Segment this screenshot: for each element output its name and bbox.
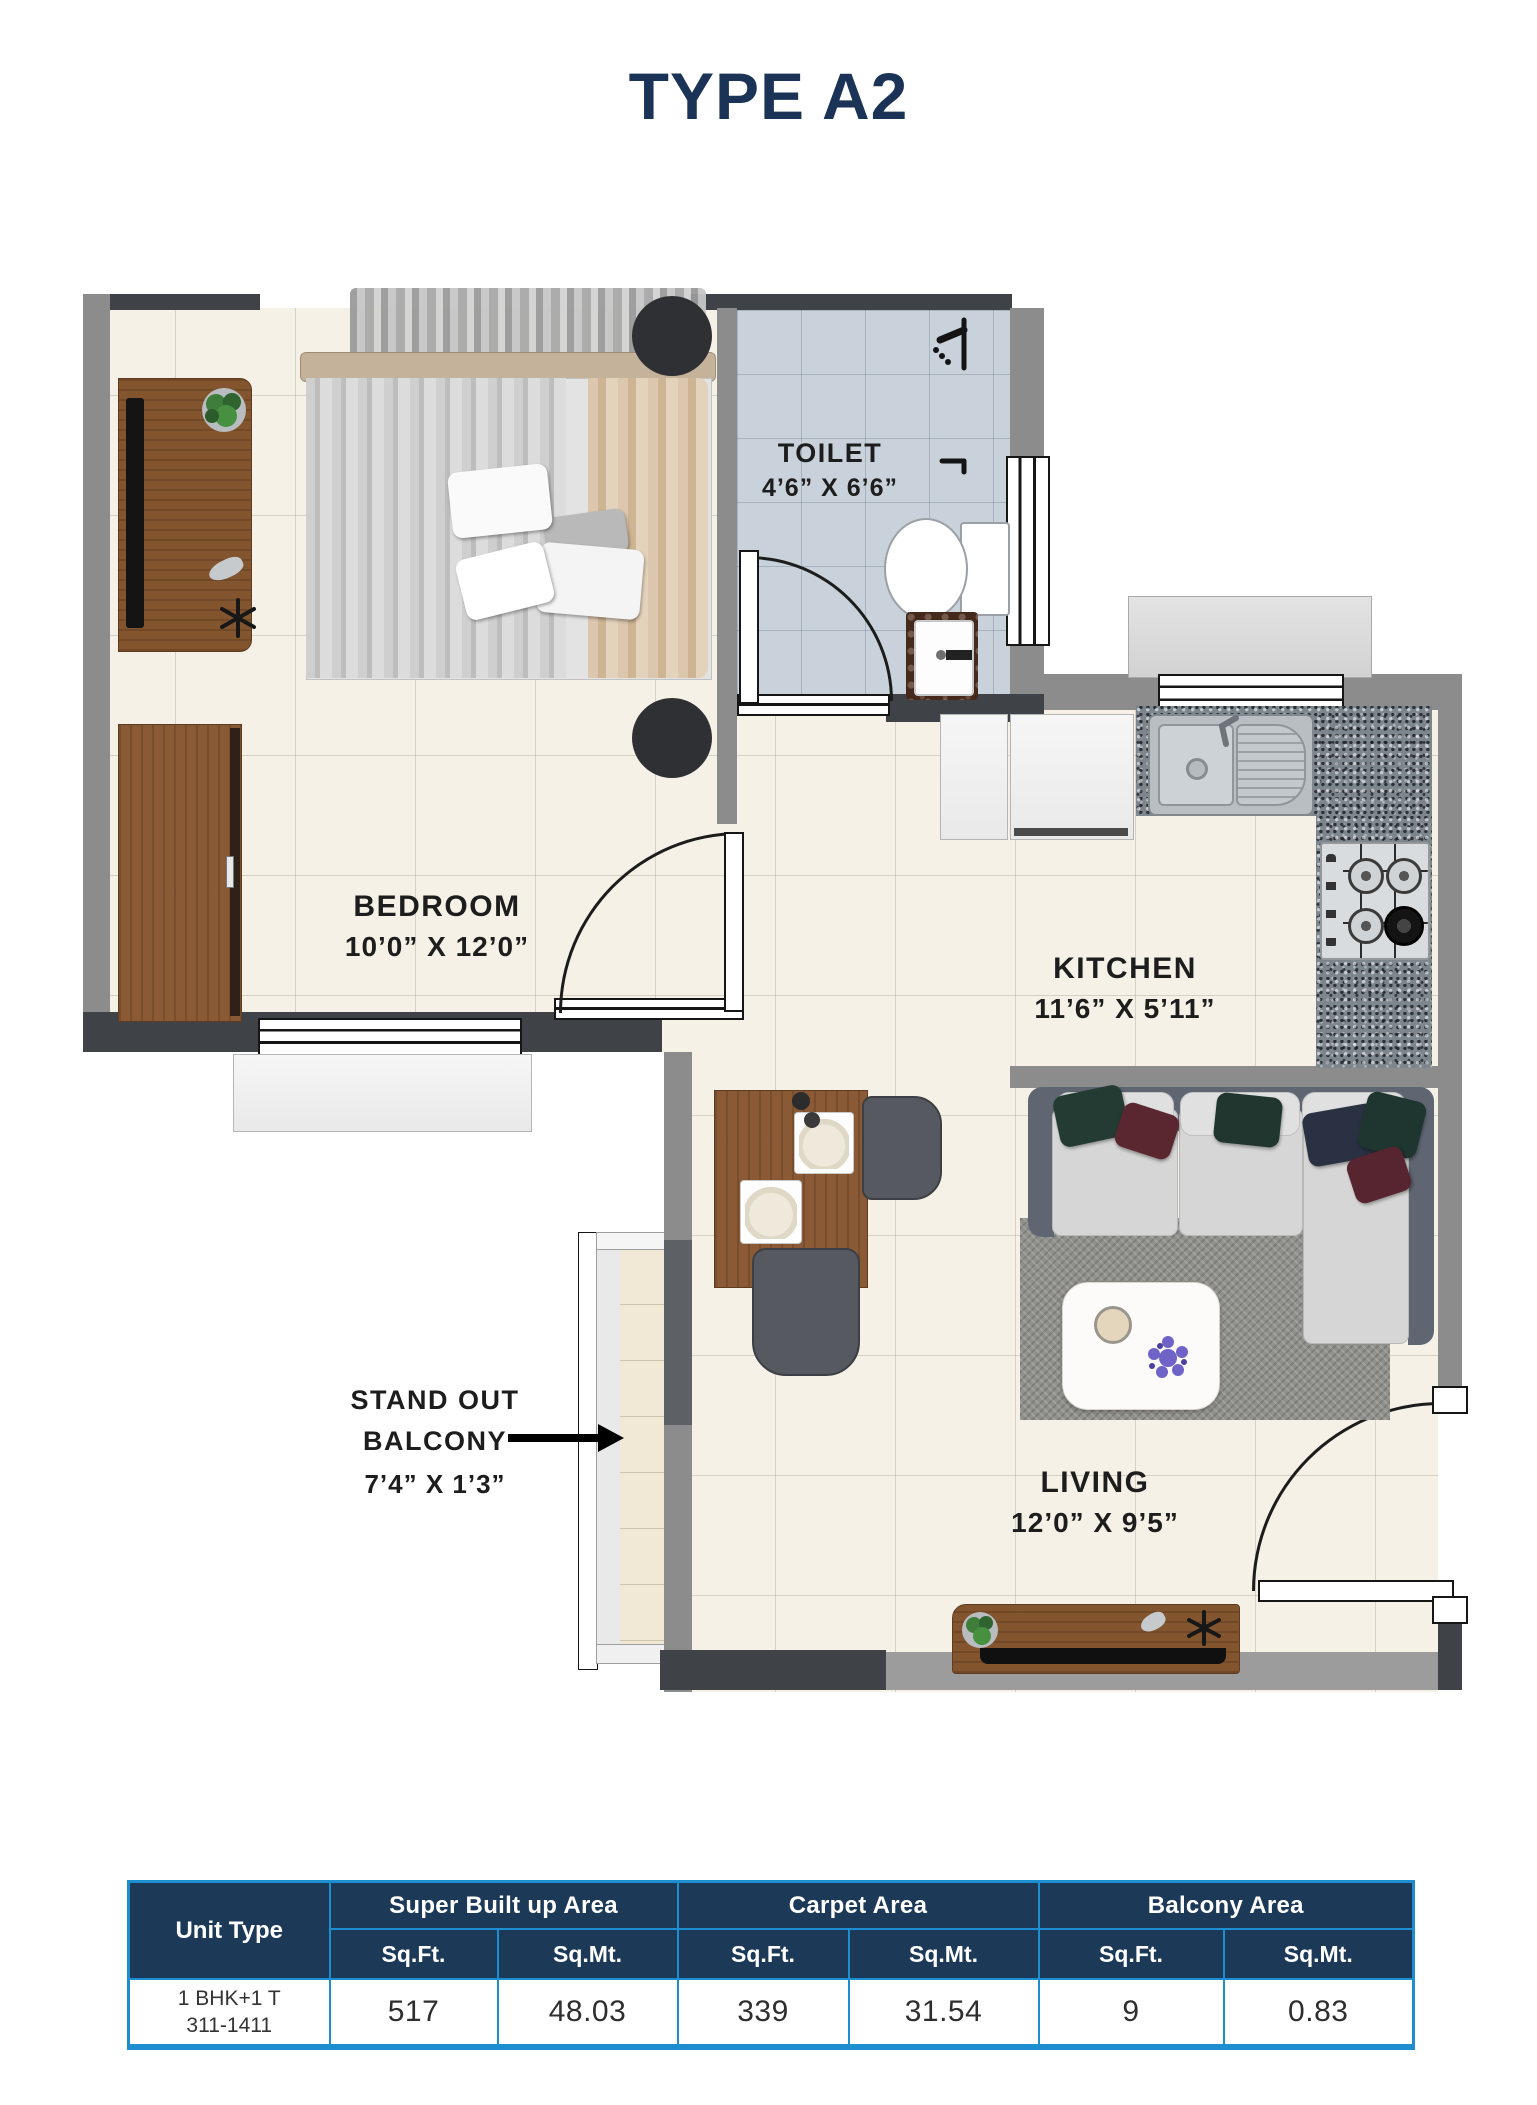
bedside-stool-top (632, 296, 712, 376)
value-sbu-sqft: 517 (330, 1979, 498, 2047)
gas-stove (1320, 842, 1430, 960)
ac-ledge-box (233, 1054, 532, 1132)
console-plant-icon (956, 1606, 1004, 1654)
toilet-label: TOILET 4’6” X 6’6” (730, 438, 930, 503)
wall-living-bottom-left (660, 1650, 886, 1690)
living-tv-screen (980, 1648, 1226, 1664)
console-decor-star-icon (216, 596, 260, 640)
sink-faucet-icon (1212, 714, 1242, 750)
kitchen-cabinet-box (940, 714, 1008, 840)
bedroom-tv-screen (126, 398, 144, 628)
col-group-carpet: Carpet Area (678, 1882, 1039, 1930)
dining-bottle-2 (804, 1112, 820, 1128)
unit-type-cell: 1 BHK+1 T 311-1411 (129, 1979, 330, 2047)
col-group-super-built-up: Super Built up Area (330, 1882, 678, 1930)
bedside-stool-bottom (632, 698, 712, 778)
wall-top-toilet (690, 294, 1012, 310)
balcony-bottom-sill (596, 1644, 666, 1664)
burner-4-wok (1384, 906, 1424, 946)
entry-door-jamb-bottom (1432, 1596, 1468, 1624)
sub-header-balcony-sqmt: Sq.Mt. (1224, 1929, 1414, 1979)
kitchen-window-ledge (1128, 596, 1372, 678)
sub-header-sbu-sqmt: Sq.Mt. (498, 1929, 678, 1979)
kitchen-dims: 11’6” X 5’11” (975, 993, 1275, 1025)
kitchen-sink (1148, 714, 1314, 816)
dining-bottle-1 (792, 1092, 810, 1110)
sub-header-balcony-sqft: Sq.Ft. (1039, 1929, 1224, 1979)
dining-chair-right (862, 1096, 942, 1200)
basin-faucet-icon (946, 650, 972, 660)
balcony-name: STAND OUT BALCONY (330, 1380, 540, 1461)
dining-chair-bottom (752, 1248, 860, 1376)
bedroom-door-leaf (724, 832, 744, 1012)
burner-1 (1348, 858, 1384, 894)
shower-mixer-icon (938, 446, 972, 476)
toilet-name: TOILET (730, 438, 930, 469)
value-sbu-sqmt: 48.03 (498, 1979, 678, 2047)
wall-kitchen-living-divider (1010, 1066, 1438, 1088)
table-row: 1 BHK+1 T 311-1411 517 48.03 339 31.54 9… (129, 1979, 1414, 2047)
entry-door-jamb-top (1432, 1386, 1468, 1414)
floor-plan-page: TYPE A2 (0, 0, 1537, 2105)
sub-header-carpet-sqmt: Sq.Mt. (849, 1929, 1039, 1979)
sink-drainboard (1236, 724, 1306, 806)
sofa-arm-left (1028, 1087, 1054, 1237)
burner-2 (1386, 858, 1422, 894)
wall-entry-side-block (1438, 1618, 1462, 1690)
kitchen-name: KITCHEN (975, 952, 1275, 986)
coffee-cup (1094, 1306, 1132, 1344)
value-carpet-sqft: 339 (678, 1979, 849, 2047)
fridge-handle-line (1014, 828, 1128, 836)
bedroom-name: BEDROOM (287, 890, 587, 924)
sofa-pillow-green-2 (1213, 1092, 1284, 1149)
balcony-top-sill (596, 1232, 666, 1250)
living-name: LIVING (945, 1466, 1245, 1500)
unit-type-line1: 1 BHK+1 T (130, 1985, 329, 2012)
wall-right (1438, 700, 1462, 1400)
kitchen-label: KITCHEN 11’6” X 5’11” (975, 952, 1275, 1025)
bedroom-dims: 10’0” X 12’0” (287, 931, 587, 963)
living-dims: 12’0” X 9’5” (945, 1507, 1245, 1539)
col-header-unit-type: Unit Type (129, 1882, 330, 1980)
balcony-outer-rail (578, 1232, 598, 1670)
kitchen-fridge-box (1010, 714, 1134, 840)
value-carpet-sqmt: 31.54 (849, 1979, 1039, 2047)
unit-type-line2: 311-1411 (130, 2012, 329, 2039)
dining-plate-2 (740, 1180, 802, 1244)
wardrobe (118, 724, 242, 1022)
sub-header-sbu-sqft: Sq.Ft. (330, 1929, 498, 1979)
burner-3 (1348, 908, 1384, 944)
living-label: LIVING 12’0” X 9’5” (945, 1466, 1245, 1539)
toilet-wc-bowl (884, 518, 968, 620)
tv-decor-star-icon (1184, 1608, 1224, 1648)
basin-drain (936, 650, 946, 660)
sink-drain (1186, 758, 1208, 780)
balcony-arrow-head-icon (598, 1424, 624, 1452)
floor-plan: BEDROOM 10’0” X 12’0” TOILET 4’6” X 6’6”… (0, 0, 1537, 2105)
area-table: Unit Type Super Built up Area Carpet Are… (127, 1880, 1415, 2050)
toilet-dims: 4’6” X 6’6” (730, 474, 930, 503)
toilet-window (1006, 456, 1050, 646)
shower-icon (920, 314, 980, 376)
wall-toilet-left (717, 308, 737, 824)
value-balcony-sqmt: 0.83 (1224, 1979, 1414, 2047)
balcony-slider-door (664, 1240, 692, 1425)
value-balcony-sqft: 9 (1039, 1979, 1224, 2047)
wall-left (83, 294, 110, 1052)
wardrobe-handle (226, 856, 234, 888)
balcony-floor (620, 1248, 664, 1652)
dining-plate-1 (794, 1112, 854, 1174)
bedroom-label: BEDROOM 10’0” X 12’0” (287, 890, 587, 963)
balcony-dims: 7’4” X 1’3” (330, 1469, 540, 1500)
bedroom-window (258, 1018, 522, 1056)
bed-pillow-white-1 (447, 463, 553, 539)
col-group-balcony: Balcony Area (1039, 1882, 1414, 1930)
toilet-door-leaf (739, 550, 759, 704)
balcony-arrow-icon (508, 1434, 600, 1442)
sub-header-carpet-sqft: Sq.Ft. (678, 1929, 849, 1979)
flower-vase-icon (1140, 1330, 1196, 1386)
plant-icon (196, 382, 252, 438)
entry-door-leaf (1258, 1580, 1454, 1602)
stove-knobs (1326, 854, 1336, 948)
